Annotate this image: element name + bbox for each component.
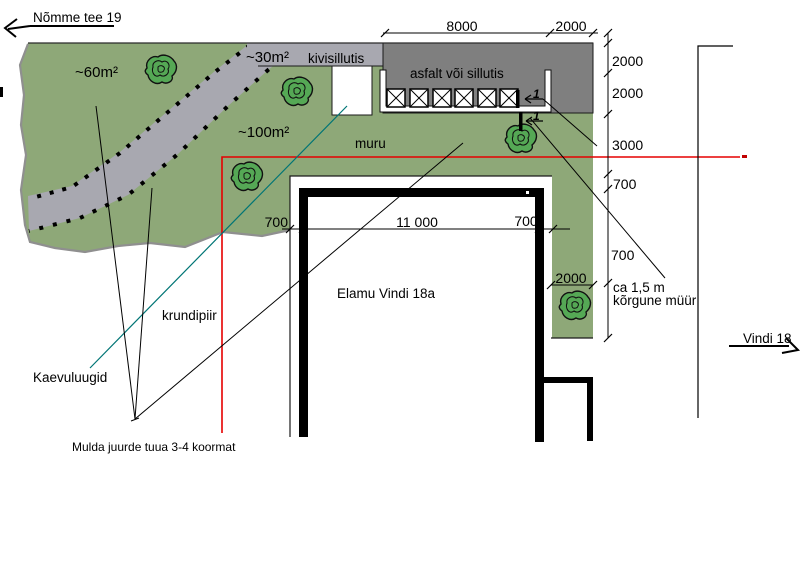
area-label-muru: muru	[355, 136, 386, 151]
house-wall-gap	[526, 191, 529, 194]
note-kaevuluugid: Kaevuluugid	[33, 370, 107, 385]
section-marker-label-upper: 1	[533, 87, 540, 101]
dim-right-3000: 3000	[612, 137, 643, 153]
section-marker-label-lower: 1	[533, 109, 540, 123]
site-plan-canvas: 1 1 Nõmme tee 19 ~60m² ~30m² kivisilluti…	[0, 0, 806, 581]
neighbour-boundary-line	[698, 46, 733, 418]
dim-strip-2000: 2000	[555, 270, 586, 286]
note-soil: Mulda juurde tuua 3-4 koormat	[72, 440, 236, 454]
driveway-opening	[332, 66, 372, 115]
dim-house-11000: 11 000	[396, 214, 438, 230]
dim-house-700-left: 700	[265, 214, 289, 230]
red-boundary-end-tick	[742, 155, 747, 158]
dim-right-700b: 700	[611, 247, 635, 263]
house-annex-wall-top	[544, 377, 593, 383]
tree-icon	[281, 77, 312, 105]
building-label: Elamu Vindi 18a	[337, 286, 436, 301]
road-label-vindi: Vindi 18	[743, 331, 792, 346]
area-label-kivisillutis: kivisillutis	[308, 51, 365, 66]
dim-right-700a: 700	[613, 176, 637, 192]
dim-top-8000: 8000	[446, 18, 477, 34]
edge-mark	[0, 87, 3, 97]
area-label-30m2: ~30m²	[246, 49, 289, 66]
dim-top-2000: 2000	[555, 18, 586, 34]
dim-right-2000b: 2000	[612, 85, 643, 101]
area-label-100m2: ~100m²	[238, 124, 289, 141]
tree-icon	[231, 162, 262, 190]
note-krundipiir: krundipiir	[162, 308, 217, 323]
house-annex-wall-right	[587, 383, 593, 441]
area-label-asfalt: asfalt või sillutis	[410, 66, 504, 81]
site-plan-drawing: 1 1 Nõmme tee 19 ~60m² ~30m² kivisilluti…	[0, 0, 806, 581]
note-wall-line2: kõrgune müür	[613, 293, 697, 308]
area-label-60m2: ~60m²	[75, 64, 118, 81]
tree-icon	[559, 291, 590, 319]
house-wall-top	[299, 188, 544, 197]
dim-right-2000a: 2000	[612, 53, 643, 69]
tree-icon	[145, 55, 176, 83]
nomme-tee-underline	[30, 25, 114, 27]
road-label-nomme-tee: Nõmme tee 19	[33, 10, 122, 25]
nomme-tee-arrow	[5, 19, 30, 37]
dim-house-700-right: 700	[514, 213, 538, 229]
